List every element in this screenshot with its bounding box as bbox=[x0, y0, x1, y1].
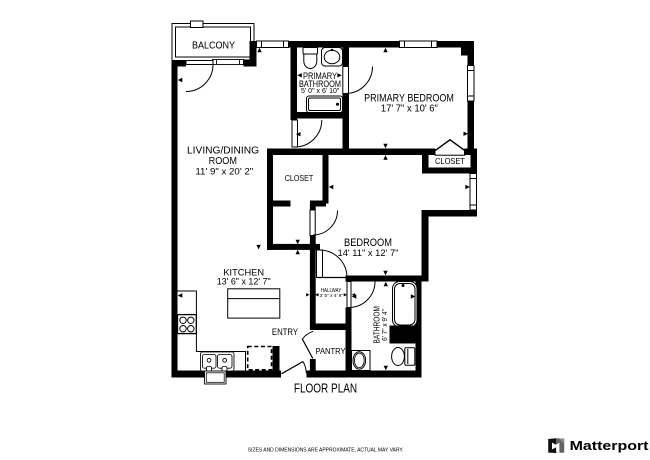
svg-text:BALCONY: BALCONY bbox=[192, 40, 235, 51]
svg-text:FLOOR PLAN: FLOOR PLAN bbox=[294, 380, 357, 395]
svg-text:13' 6" x 12' 7": 13' 6" x 12' 7" bbox=[217, 277, 271, 288]
svg-text:PANTRY: PANTRY bbox=[316, 346, 346, 356]
svg-text:5' 0" x 6' 10": 5' 0" x 6' 10" bbox=[301, 86, 340, 95]
svg-text:LIVING/DINING: LIVING/DINING bbox=[187, 145, 259, 156]
svg-text:Matterport: Matterport bbox=[570, 438, 650, 453]
svg-text:6' 7" x 9' 4": 6' 7" x 9' 4" bbox=[380, 309, 389, 341]
svg-text:CLOSET: CLOSET bbox=[435, 156, 465, 166]
svg-text:BEDROOM: BEDROOM bbox=[344, 237, 392, 249]
svg-text:ENTRY: ENTRY bbox=[272, 327, 298, 337]
svg-text:14' 11" x 12' 7": 14' 11" x 12' 7" bbox=[338, 248, 399, 259]
svg-text:11' 9" x 20' 2": 11' 9" x 20' 2" bbox=[195, 166, 253, 177]
svg-text:CLOSET: CLOSET bbox=[285, 173, 314, 183]
svg-text:3' 5" x 4' 9": 3' 5" x 4' 9" bbox=[320, 293, 344, 298]
svg-text:17' 7" x 10' 6": 17' 7" x 10' 6" bbox=[381, 103, 438, 114]
svg-text:SIZES AND DIMENSIONS ARE APPRO: SIZES AND DIMENSIONS ARE APPROXIMATE, AC… bbox=[248, 448, 404, 454]
